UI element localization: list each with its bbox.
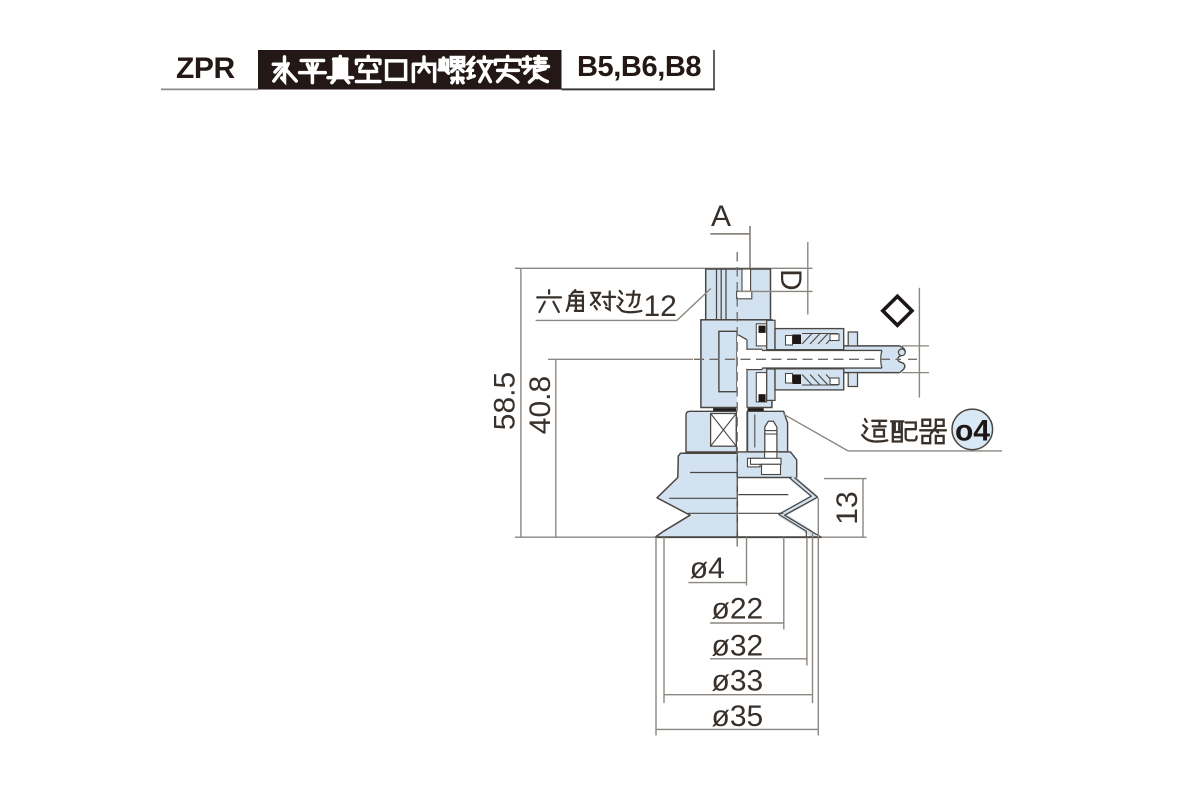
svg-text:ø4: ø4	[690, 552, 725, 585]
svg-text:ø32: ø32	[712, 630, 764, 663]
svg-text:ø22: ø22	[712, 593, 764, 626]
svg-text:A: A	[711, 200, 731, 233]
svg-text:ø33: ø33	[712, 665, 764, 698]
svg-text:D: D	[774, 269, 807, 291]
svg-text:o4: o4	[955, 415, 990, 448]
svg-text:13: 13	[831, 491, 864, 524]
svg-text:40.8: 40.8	[524, 376, 557, 434]
svg-text:B5,B6,B8: B5,B6,B8	[577, 51, 701, 83]
svg-text:12: 12	[644, 290, 677, 323]
svg-text:ø35: ø35	[712, 700, 764, 733]
svg-text:58.5: 58.5	[489, 372, 522, 430]
svg-text:ZPR: ZPR	[176, 52, 236, 85]
